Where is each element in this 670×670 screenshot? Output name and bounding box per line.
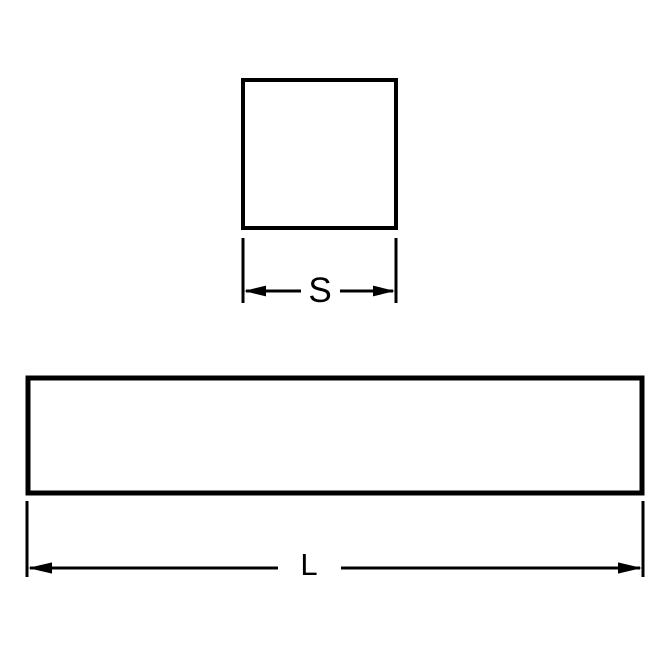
square-cross-section-outline (243, 80, 396, 228)
technical-drawing-page: S L (0, 0, 670, 670)
s-arrowhead-right-icon (373, 286, 395, 297)
l-dimension-label: L (300, 547, 317, 582)
l-arrowhead-right-icon (618, 562, 642, 573)
bar-side-view-outline (28, 378, 642, 493)
l-arrowhead-left-icon (28, 562, 52, 573)
s-dimension-label: S (308, 271, 331, 310)
square-bar-dimension-diagram: S L (0, 0, 670, 670)
s-arrowhead-left-icon (244, 286, 266, 297)
